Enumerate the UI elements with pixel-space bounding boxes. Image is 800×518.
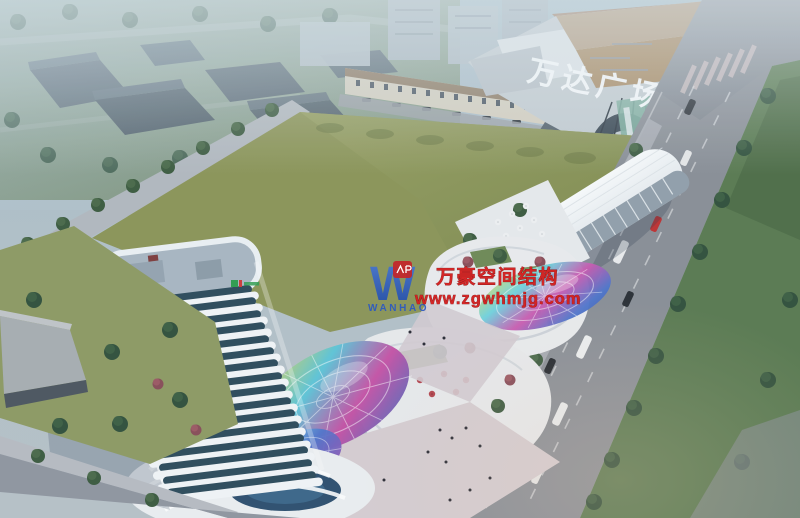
- watermark-company: 万豪空间结构: [435, 265, 559, 288]
- watermark-website: www.zgwhmjg.com: [414, 290, 582, 308]
- watermark: W WANHAO 万豪空间结构 www.zgwhmjg.com: [368, 258, 582, 314]
- aerial-rendering: 万达广场: [0, 0, 800, 518]
- scene: 万达广场: [0, 0, 800, 518]
